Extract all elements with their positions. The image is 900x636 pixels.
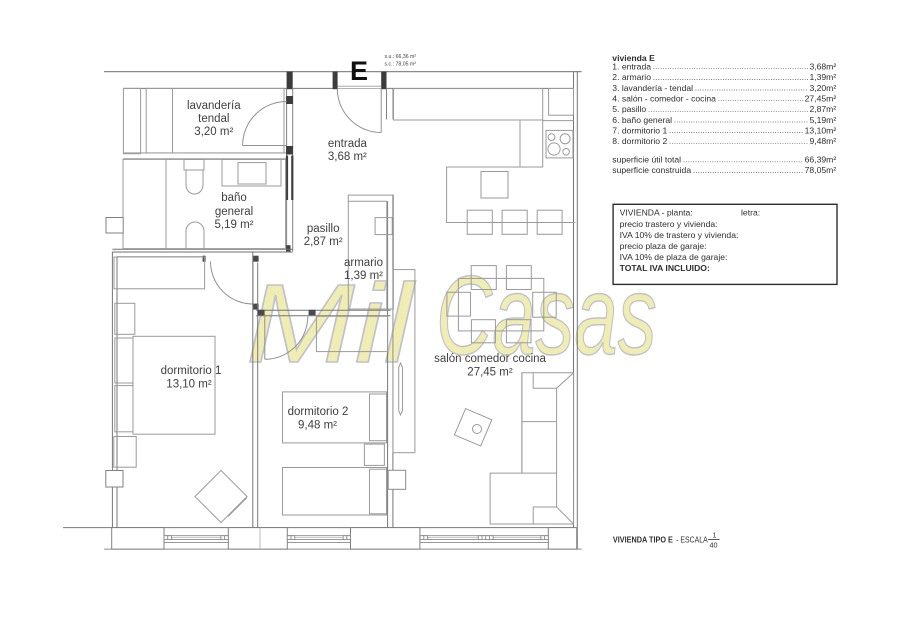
svg-text:VIVIENDA - planta:: VIVIENDA - planta: <box>620 208 693 218</box>
svg-text:9,48m²: 9,48m² <box>809 136 836 146</box>
svg-text:superficie construida: superficie construida <box>612 165 691 175</box>
svg-text:8. dormitorio 2: 8. dormitorio 2 <box>612 136 667 146</box>
svg-text:dormitorio 1: dormitorio 1 <box>161 365 222 377</box>
svg-text:IVA 10% de plaza de garaje:: IVA 10% de plaza de garaje: <box>620 252 728 262</box>
svg-text:lavandería: lavandería <box>187 100 241 112</box>
svg-text:precio trastero y vivienda:: precio trastero y vivienda: <box>620 219 718 229</box>
svg-text:pasillo: pasillo <box>307 223 340 235</box>
svg-text:5,19 m²: 5,19 m² <box>215 219 254 231</box>
svg-text:Mil: Mil <box>246 261 416 386</box>
svg-text:letra:: letra: <box>741 208 760 218</box>
svg-text:27,45 m²: 27,45 m² <box>467 367 513 379</box>
svg-text:78,05m²: 78,05m² <box>805 165 837 175</box>
svg-text:entrada: entrada <box>328 138 368 150</box>
svg-text:precio plaza de garaje:: precio plaza de garaje: <box>620 241 707 251</box>
svg-text:tendal: tendal <box>198 113 229 125</box>
svg-text:1,39m²: 1,39m² <box>809 72 836 82</box>
svg-text:armario: armario <box>344 257 383 269</box>
svg-text:2,87m²: 2,87m² <box>809 104 836 114</box>
svg-text:VIVIENDA TIPO E: VIVIENDA TIPO E <box>613 535 673 545</box>
svg-text:2,87 m²: 2,87 m² <box>304 236 343 248</box>
svg-text:3,68 m²: 3,68 m² <box>328 151 367 163</box>
svg-text:4. salón - comedor - cocina: 4. salón - comedor - cocina <box>612 94 716 104</box>
svg-text:- ESCALA: - ESCALA <box>676 535 708 545</box>
svg-text:40: 40 <box>710 541 718 550</box>
svg-text:s.c.: 78,05 m²: s.c.: 78,05 m² <box>385 62 417 68</box>
svg-text:3,20m²: 3,20m² <box>809 83 836 93</box>
svg-text:9,48 m²: 9,48 m² <box>298 420 337 432</box>
svg-text:1. entrada: 1. entrada <box>612 62 651 72</box>
svg-text:superficie útil total: superficie útil total <box>612 155 681 165</box>
svg-text:baño: baño <box>221 192 247 204</box>
svg-text:2. armario: 2. armario <box>612 72 651 82</box>
svg-text:E: E <box>350 56 368 86</box>
svg-text:general: general <box>215 206 253 218</box>
svg-text:TOTAL IVA INCLUIDO:: TOTAL IVA INCLUIDO: <box>620 263 710 273</box>
svg-text:IVA 10% de trastero y vivienda: IVA 10% de trastero y vivienda: <box>620 230 739 240</box>
svg-text:5. pasillo: 5. pasillo <box>612 104 646 114</box>
svg-text:13,10m²: 13,10m² <box>805 125 837 135</box>
svg-text:3. lavandería - tendal: 3. lavandería - tendal <box>612 83 693 93</box>
svg-text:3,20 m²: 3,20 m² <box>194 126 233 138</box>
svg-text:13,10 m²: 13,10 m² <box>166 379 212 391</box>
svg-text:salón comedor cocina: salón comedor cocina <box>434 353 546 365</box>
svg-text:66,39m²: 66,39m² <box>805 155 837 165</box>
svg-text:6. baño general: 6. baño general <box>612 115 672 125</box>
svg-text:3,68m²: 3,68m² <box>809 62 836 72</box>
svg-text:7. dormitorio 1: 7. dormitorio 1 <box>612 125 667 135</box>
svg-text:1,39 m²: 1,39 m² <box>344 270 383 282</box>
svg-text:dormitorio 2: dormitorio 2 <box>288 406 349 418</box>
svg-text:27,45m²: 27,45m² <box>805 94 837 104</box>
svg-text:1: 1 <box>713 531 717 540</box>
svg-text:s.u.: 66,36 m²: s.u.: 66,36 m² <box>385 54 417 60</box>
svg-text:5,19m²: 5,19m² <box>809 115 836 125</box>
